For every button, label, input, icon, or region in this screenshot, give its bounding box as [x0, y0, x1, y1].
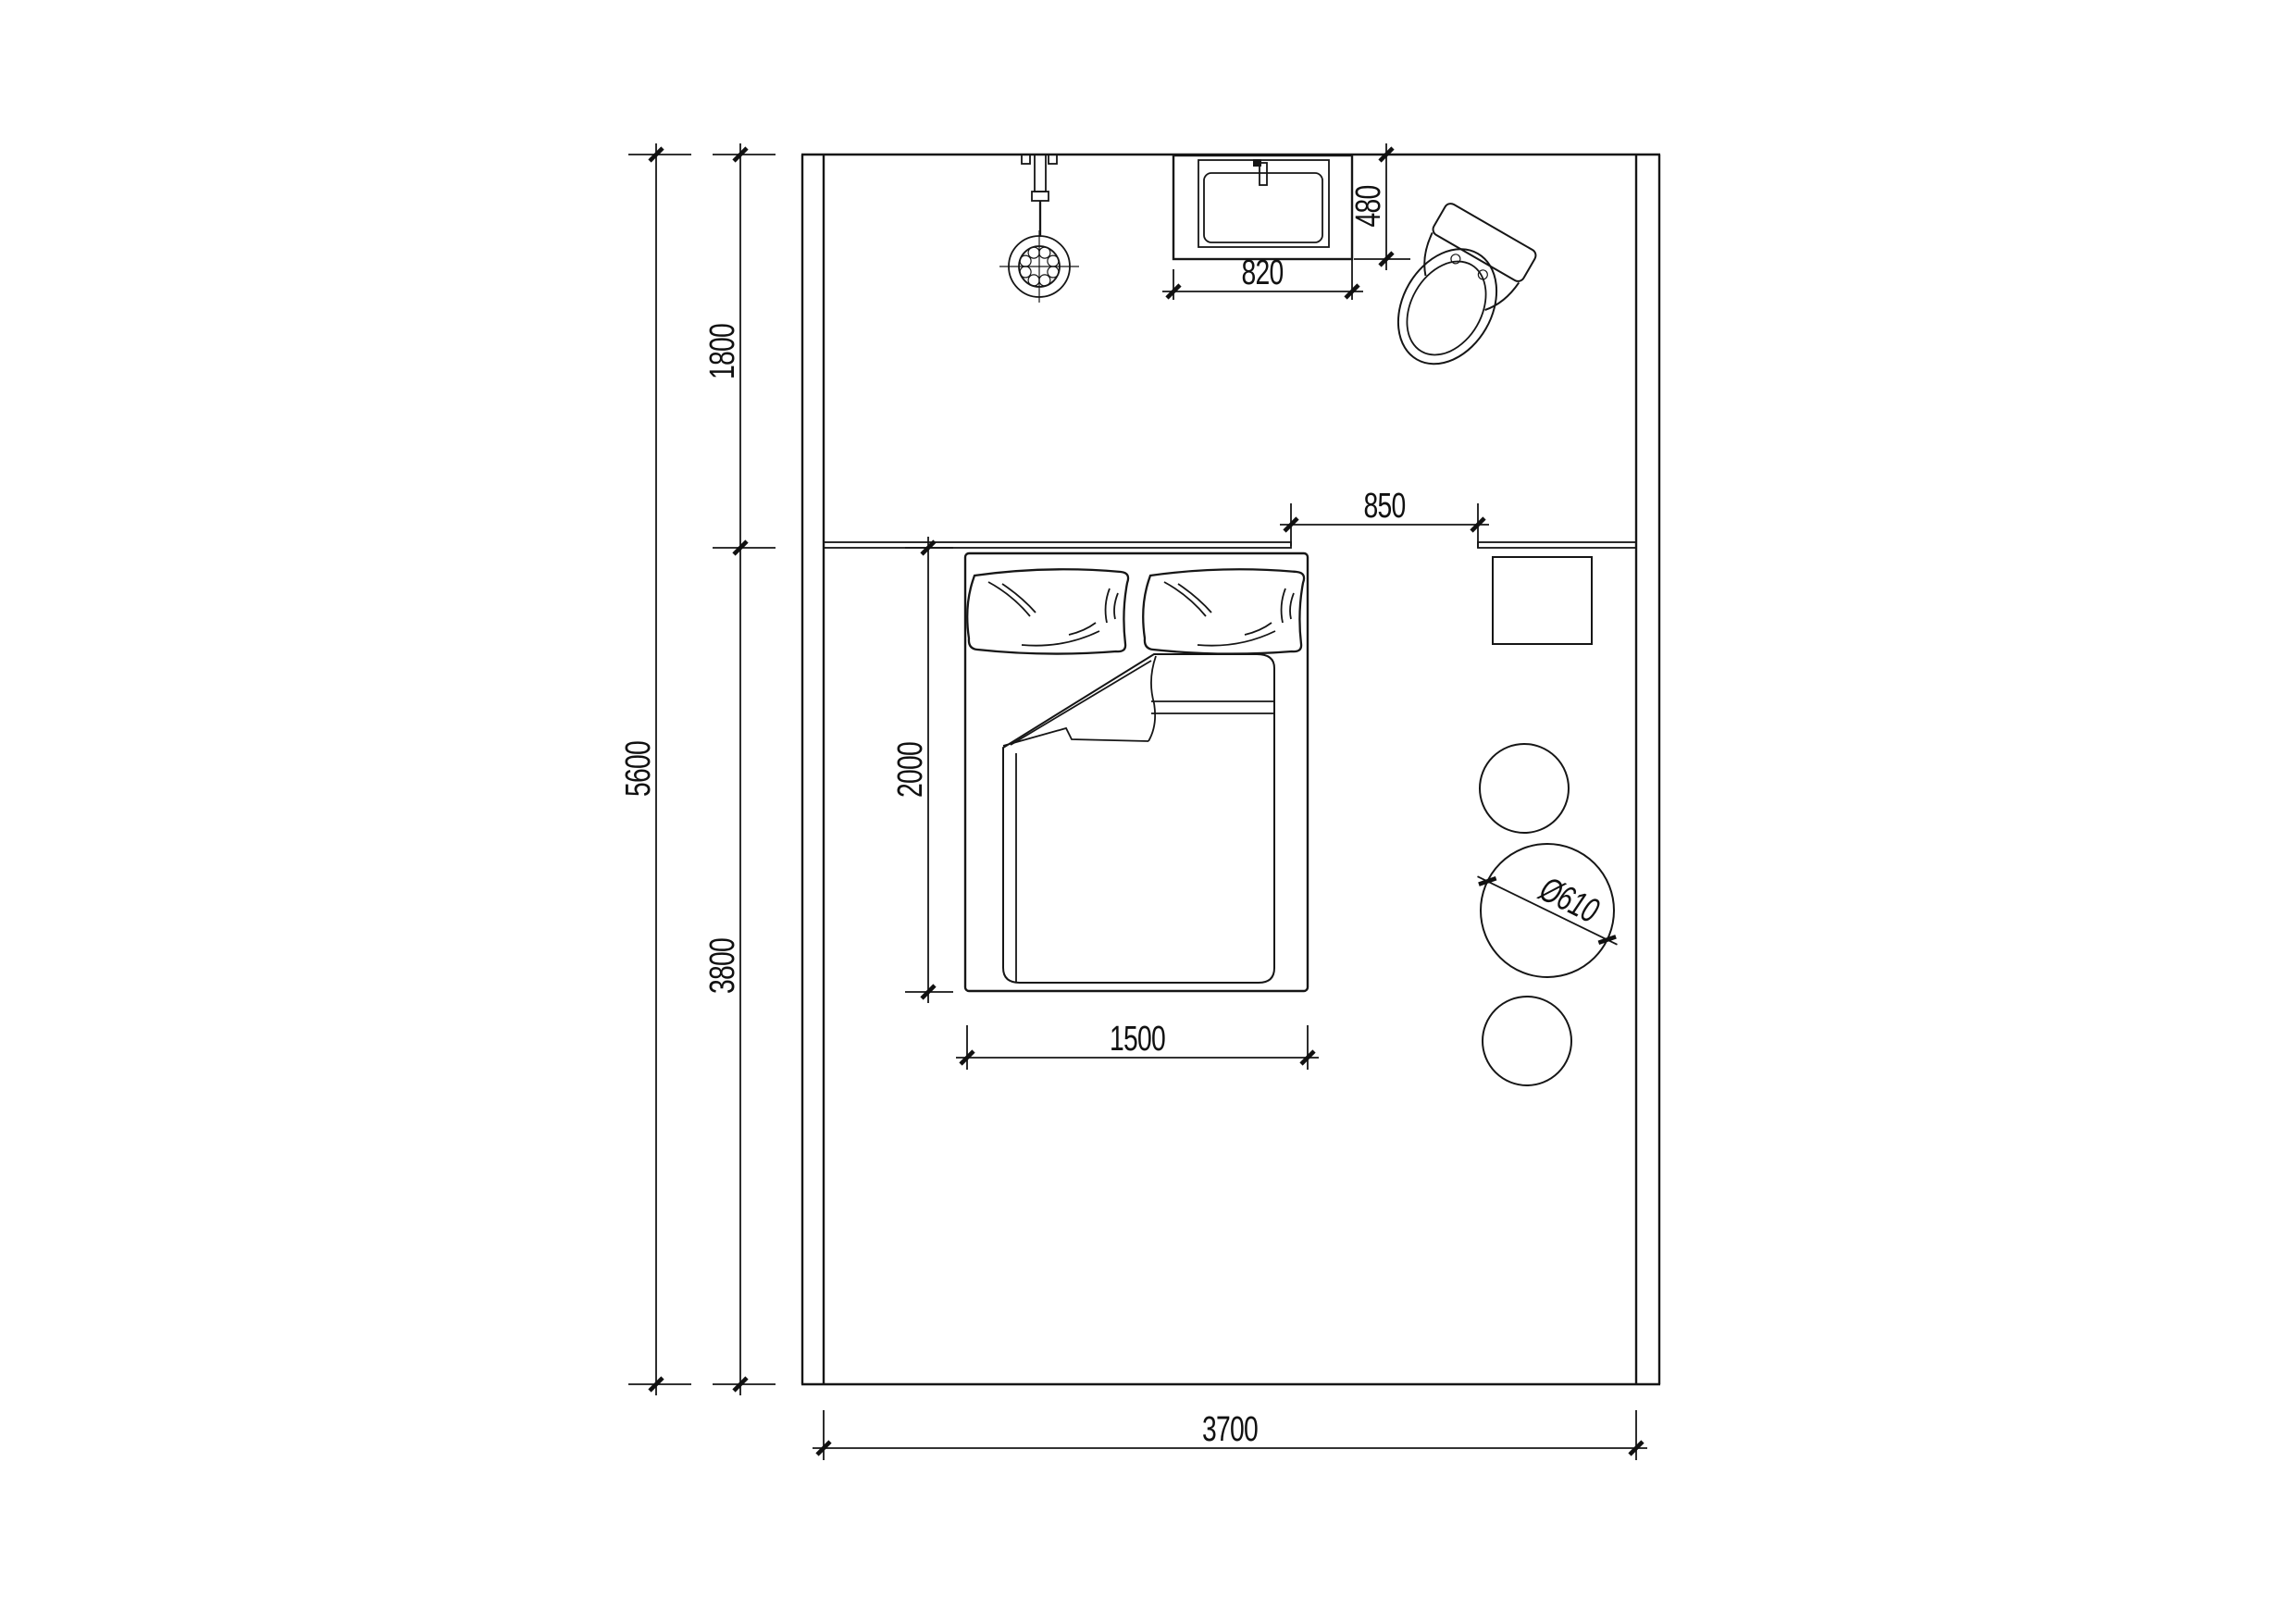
blanket-fold-wave [1148, 656, 1156, 741]
toilet [1372, 202, 1538, 386]
dim-2000-label: 2000 [891, 742, 930, 798]
dim-480-label: 480 [1349, 186, 1388, 228]
dim-820-label: 820 [1242, 254, 1284, 292]
blanket-fold-edge [1011, 661, 1151, 745]
floor-drain-fixture [999, 155, 1079, 303]
pipe-bracket-left [1022, 155, 1030, 164]
floor-plan-svg: 5600 1800 3800 3700 820 [0, 0, 2296, 1623]
pillow-right [1143, 569, 1304, 653]
vanity-outer [1173, 155, 1352, 259]
dim-5600-label: 5600 [619, 741, 658, 797]
stool-circle-top [1480, 744, 1569, 833]
dim-2000: 2000 [891, 537, 953, 1003]
dim-1800-label: 1800 [703, 324, 742, 379]
side-table-square [1493, 557, 1592, 644]
dim-850: 850 [1280, 487, 1489, 548]
dim-3700: 3700 [813, 1410, 1647, 1460]
toilet-hinge-left [1449, 253, 1462, 266]
floor-plan-page: 5600 1800 3800 3700 820 [0, 0, 2296, 1623]
pillow-left-outline [967, 569, 1128, 653]
vanity-sink [1173, 155, 1352, 259]
desk-shelf [1478, 542, 1636, 548]
dim-3700-label: 3700 [1202, 1410, 1258, 1449]
toilet-side-right [1485, 275, 1520, 318]
sink-basin [1204, 173, 1322, 242]
dim-5600: 5600 [619, 143, 691, 1395]
pillow-left [967, 569, 1128, 653]
bed [965, 553, 1308, 991]
stool-circle-bottom [1483, 997, 1571, 1085]
dim-1500-label: 1500 [1110, 1020, 1165, 1059]
toilet-tank [1431, 202, 1538, 284]
dim-610-label: Ø610 [1533, 870, 1605, 932]
room-walls [801, 155, 1660, 1384]
dim-1800-3800: 1800 3800 [703, 143, 776, 1395]
pipe-bracket-right [1049, 155, 1057, 164]
dim-1500: 1500 [956, 1020, 1319, 1070]
dim-850-label: 850 [1364, 487, 1406, 526]
pillow-right-outline [1143, 569, 1304, 653]
dim-480: 480 [1349, 143, 1410, 270]
dim-820: 820 [1162, 254, 1363, 300]
headboard-shelf [824, 542, 1291, 548]
pipe-coupling [1032, 192, 1049, 201]
supply-pipe [1035, 155, 1046, 192]
dim-3800-label: 3800 [703, 938, 742, 994]
blanket-outline [1003, 654, 1274, 983]
blanket [1003, 654, 1274, 983]
toilet-bowl [1378, 231, 1516, 381]
